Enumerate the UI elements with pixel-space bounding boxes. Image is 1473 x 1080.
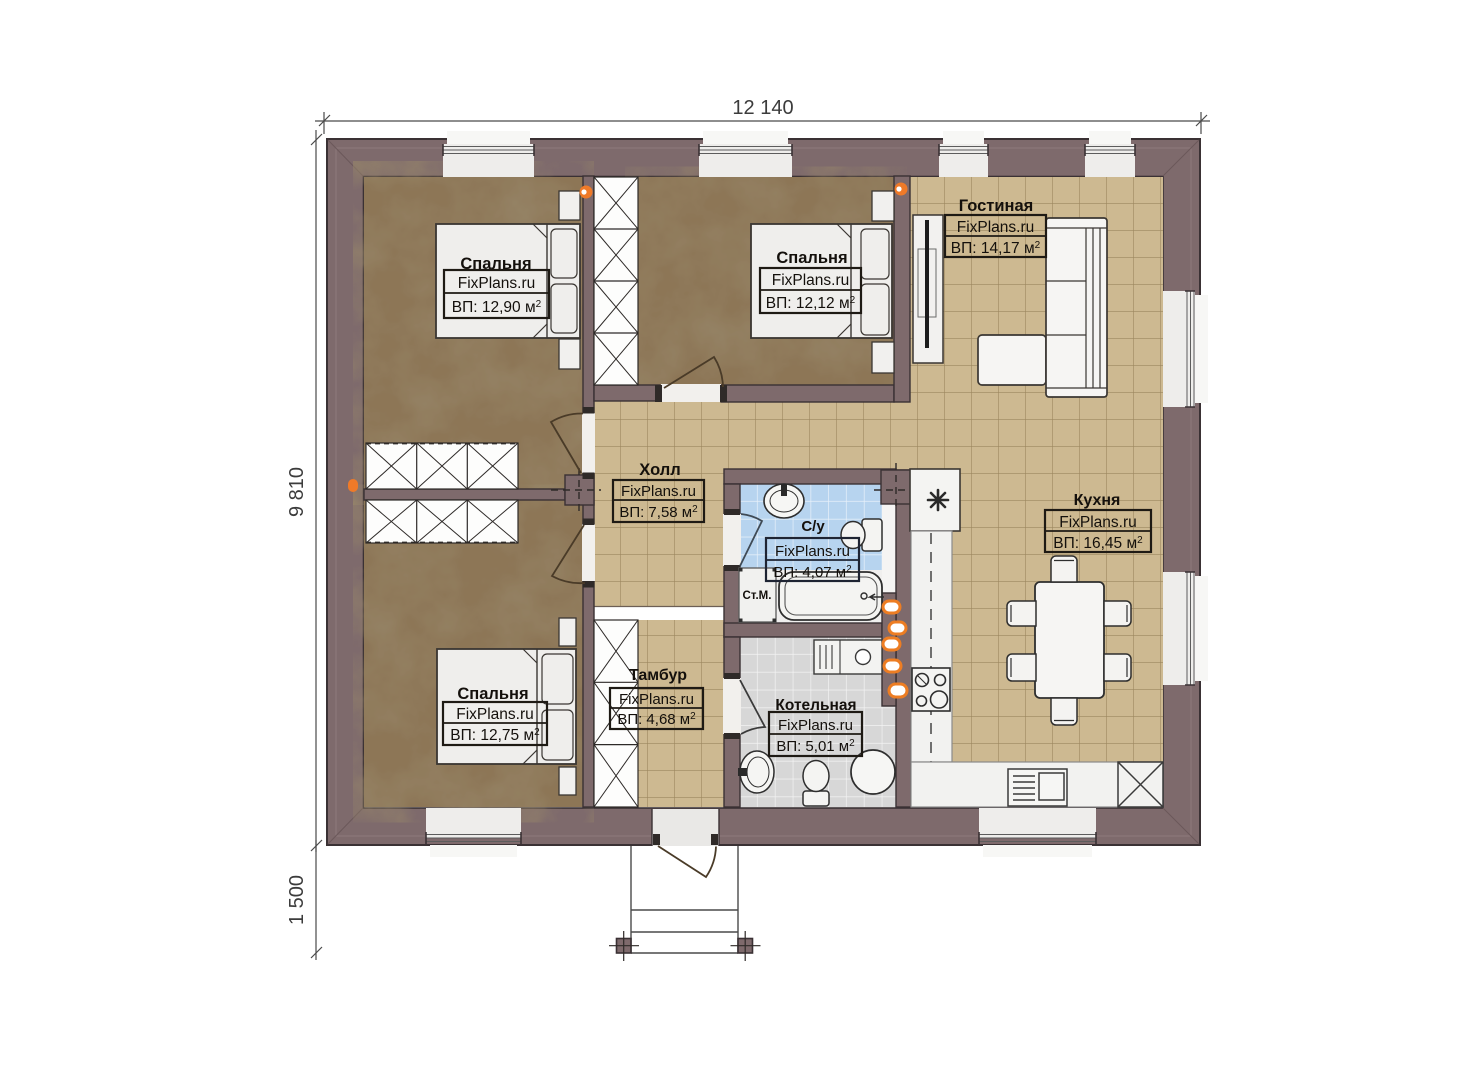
- svg-text:Спальня: Спальня: [776, 249, 847, 267]
- svg-text:ВП: 12,90 м2: ВП: 12,90 м2: [452, 299, 542, 316]
- svg-text:ВП: 4,68 м2: ВП: 4,68 м2: [617, 711, 696, 728]
- svg-text:FixPlans.ru: FixPlans.ru: [775, 543, 850, 560]
- svg-text:FixPlans.ru: FixPlans.ru: [778, 717, 853, 734]
- svg-text:ВП: 16,45 м2: ВП: 16,45 м2: [1053, 535, 1143, 552]
- svg-text:9 810: 9 810: [286, 467, 308, 517]
- svg-text:FixPlans.ru: FixPlans.ru: [456, 706, 534, 723]
- svg-text:ВП: 12,75 м2: ВП: 12,75 м2: [450, 727, 540, 744]
- svg-text:ВП: 14,17 м2: ВП: 14,17 м2: [951, 240, 1041, 257]
- svg-text:FixPlans.ru: FixPlans.ru: [957, 219, 1035, 236]
- svg-text:FixPlans.ru: FixPlans.ru: [458, 275, 536, 292]
- svg-text:FixPlans.ru: FixPlans.ru: [1059, 514, 1137, 531]
- svg-text:Спальня: Спальня: [457, 685, 528, 703]
- svg-text:FixPlans.ru: FixPlans.ru: [621, 483, 696, 500]
- svg-text:FixPlans.ru: FixPlans.ru: [619, 691, 694, 708]
- svg-text:Гостиная: Гостиная: [959, 197, 1034, 215]
- svg-text:ВП: 12,12 м2: ВП: 12,12 м2: [766, 295, 856, 312]
- svg-text:Тамбур: Тамбур: [629, 667, 687, 684]
- svg-text:Кухня: Кухня: [1074, 492, 1121, 509]
- svg-text:FixPlans.ru: FixPlans.ru: [772, 272, 850, 289]
- svg-text:ВП: 5,01 м2: ВП: 5,01 м2: [776, 738, 855, 755]
- svg-text:С/у: С/у: [801, 518, 825, 535]
- svg-text:Холл: Холл: [639, 461, 680, 479]
- svg-text:1 500: 1 500: [286, 875, 308, 925]
- svg-text:12 140: 12 140: [732, 97, 793, 119]
- svg-text:ВП: 7,58 м2: ВП: 7,58 м2: [619, 504, 698, 521]
- svg-text:Ст.М.: Ст.М.: [743, 590, 772, 602]
- svg-text:ВП: 4,07 м2: ВП: 4,07 м2: [773, 564, 852, 581]
